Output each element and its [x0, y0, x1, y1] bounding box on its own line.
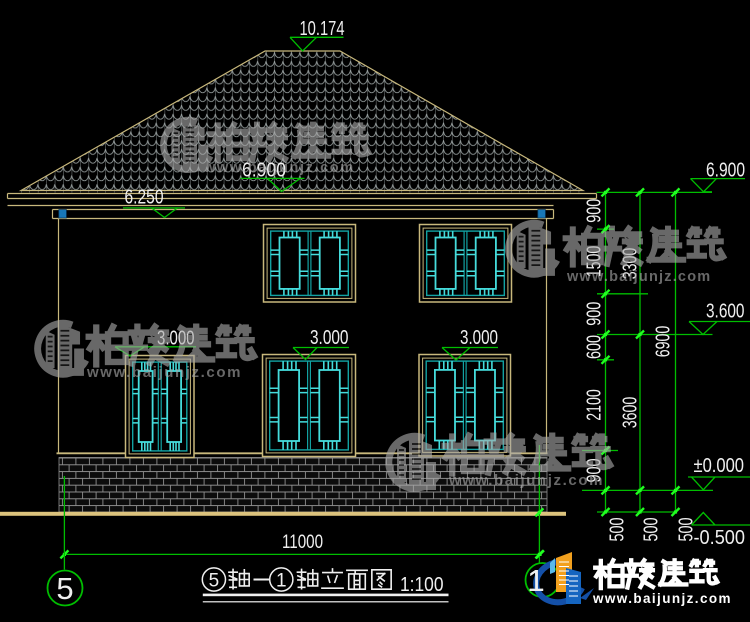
- svg-text:www.baijunjz.com: www.baijunjz.com: [203, 160, 355, 176]
- svg-text:1: 1: [527, 563, 544, 598]
- svg-text:5: 5: [209, 571, 220, 592]
- svg-text:±0.000: ±0.000: [694, 454, 745, 477]
- svg-text:-0.500: -0.500: [694, 526, 746, 549]
- svg-text:2100: 2100: [584, 389, 606, 421]
- svg-text:www.baijunjz.com: www.baijunjz.com: [566, 269, 711, 285]
- svg-text:5: 5: [56, 571, 73, 606]
- svg-text:3.000: 3.000: [460, 326, 498, 349]
- svg-text:10.174: 10.174: [300, 17, 345, 40]
- svg-text:3.000: 3.000: [310, 326, 349, 349]
- svg-text:500: 500: [676, 518, 698, 542]
- svg-text:6.250: 6.250: [125, 186, 164, 209]
- svg-text:3.600: 3.600: [706, 300, 745, 323]
- svg-text:1:100: 1:100: [400, 573, 444, 596]
- svg-text:www.baijunjz.com: www.baijunjz.com: [448, 472, 604, 489]
- svg-text:11000: 11000: [282, 531, 323, 553]
- svg-text:6.900: 6.900: [706, 158, 745, 181]
- svg-text:900: 900: [584, 302, 606, 326]
- svg-text:www.baijunjz.com: www.baijunjz.com: [86, 364, 242, 381]
- svg-text:6900: 6900: [653, 326, 675, 358]
- svg-text:600: 600: [584, 335, 606, 359]
- svg-text:3600: 3600: [620, 397, 642, 429]
- svg-text:500: 500: [641, 518, 663, 542]
- svg-text:900: 900: [584, 199, 606, 223]
- svg-text:500: 500: [607, 518, 629, 542]
- svg-text:www.baijunjz.com: www.baijunjz.com: [592, 591, 732, 606]
- svg-text:1: 1: [276, 571, 287, 592]
